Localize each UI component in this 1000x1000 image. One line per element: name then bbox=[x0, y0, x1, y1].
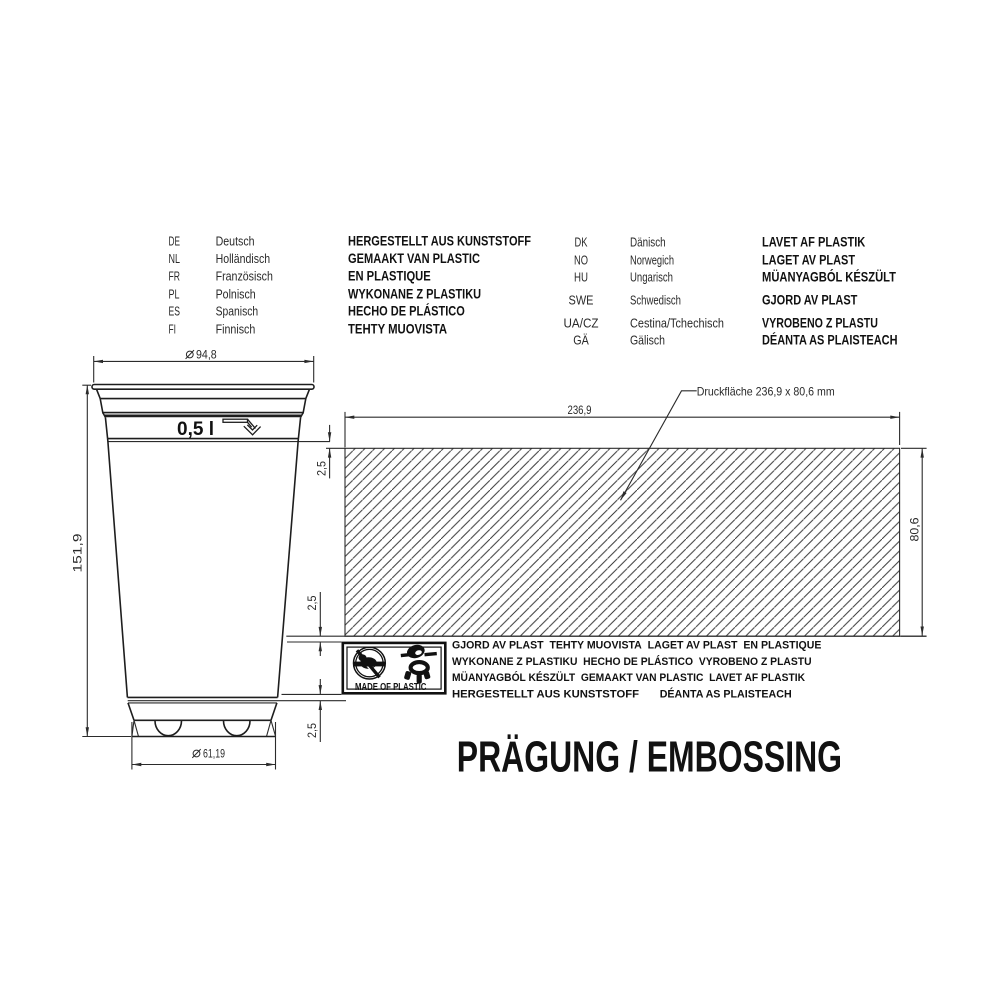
svg-text:MÜANYAGBÓL KÉSZÜLT: MÜANYAGBÓL KÉSZÜLT bbox=[762, 270, 897, 285]
svg-text:DÉANTA AS PLAISTEACH: DÉANTA AS PLAISTEACH bbox=[660, 688, 792, 701]
svg-text:GÄ: GÄ bbox=[573, 333, 589, 348]
svg-text:NO: NO bbox=[574, 253, 588, 268]
svg-text:FI: FI bbox=[169, 322, 177, 337]
svg-text:LAGET AV PLAST: LAGET AV PLAST bbox=[762, 253, 856, 268]
svg-text:TEHTY MUOVISTA: TEHTY MUOVISTA bbox=[348, 322, 447, 337]
svg-text:Cestina/Tchechisch: Cestina/Tchechisch bbox=[630, 316, 724, 331]
svg-text:GEMAAKT VAN PLASTIC: GEMAAKT VAN PLASTIC bbox=[348, 251, 480, 266]
svg-text:94,8: 94,8 bbox=[196, 349, 217, 361]
svg-text:DÉANTA AS PLAISTEACH: DÉANTA AS PLAISTEACH bbox=[762, 333, 898, 348]
svg-text:Deutsch: Deutsch bbox=[216, 234, 255, 249]
svg-text:UA/CZ: UA/CZ bbox=[564, 316, 599, 331]
svg-text:NL: NL bbox=[169, 251, 181, 266]
svg-text:2,5: 2,5 bbox=[316, 461, 328, 476]
svg-text:WYKONANE Z PLASTIKU: WYKONANE Z PLASTIKU bbox=[348, 287, 481, 302]
svg-text:80,6: 80,6 bbox=[910, 518, 922, 542]
svg-text:Norwegich: Norwegich bbox=[630, 253, 674, 268]
svg-text:PRÄGUNG / EMBOSSING: PRÄGUNG / EMBOSSING bbox=[457, 733, 842, 782]
svg-text:MADE OF PLASTIC: MADE OF PLASTIC bbox=[355, 682, 426, 693]
svg-text:2,5: 2,5 bbox=[307, 596, 319, 611]
svg-text:GJORD AV PLAST TEHTY MUOVISTA: GJORD AV PLAST TEHTY MUOVISTA LAGET AV P… bbox=[452, 639, 822, 651]
svg-text:Holländisch: Holländisch bbox=[216, 251, 271, 266]
svg-text:236,9: 236,9 bbox=[568, 405, 592, 417]
svg-text:Gälisch: Gälisch bbox=[630, 333, 665, 348]
svg-text:LAVET AF PLASTIK: LAVET AF PLASTIK bbox=[762, 235, 866, 250]
svg-text:Französisch: Französisch bbox=[216, 269, 273, 284]
svg-text:Spanisch: Spanisch bbox=[216, 304, 259, 319]
svg-text:PL: PL bbox=[169, 287, 180, 302]
svg-text:EN PLASTIQUE: EN PLASTIQUE bbox=[348, 269, 431, 284]
svg-text:HERGESTELLT AUS KUNSTSTOFF: HERGESTELLT AUS KUNSTSTOFF bbox=[452, 689, 639, 701]
svg-text:MÜANYAGBÓL KÉSZÜLT GEMAAKT VA: MÜANYAGBÓL KÉSZÜLT GEMAAKT VAN PLASTIC L… bbox=[452, 671, 806, 684]
svg-text:0,5 l: 0,5 l bbox=[177, 418, 214, 440]
svg-text:Dänisch: Dänisch bbox=[630, 235, 666, 250]
svg-text:GJORD AV PLAST: GJORD AV PLAST bbox=[762, 293, 858, 308]
svg-text:SWE: SWE bbox=[569, 293, 594, 308]
svg-text:ES: ES bbox=[169, 304, 181, 319]
svg-text:HU: HU bbox=[574, 270, 588, 285]
svg-text:HECHO DE PLÁSTICO: HECHO DE PLÁSTICO bbox=[348, 304, 465, 319]
svg-text:DK: DK bbox=[575, 235, 588, 250]
svg-text:DE: DE bbox=[169, 234, 181, 249]
svg-text:VYROBENO Z PLASTU: VYROBENO Z PLASTU bbox=[762, 316, 878, 331]
svg-text:FR: FR bbox=[169, 269, 181, 284]
svg-text:Polnisch: Polnisch bbox=[216, 287, 256, 302]
svg-text:2,5: 2,5 bbox=[307, 723, 319, 738]
svg-text:151,9: 151,9 bbox=[73, 534, 85, 573]
svg-text:Druckfläche 236,9 x 80,6 mm: Druckfläche 236,9 x 80,6 mm bbox=[697, 384, 835, 398]
svg-text:Finnisch: Finnisch bbox=[216, 322, 256, 337]
svg-text:61,19: 61,19 bbox=[203, 748, 225, 760]
svg-text:WYKONANE Z PLASTIKU HECHO DE: WYKONANE Z PLASTIKU HECHO DE PLÁSTICO VY… bbox=[452, 655, 812, 668]
svg-text:Ungarisch: Ungarisch bbox=[630, 270, 673, 285]
svg-text:HERGESTELLT AUS KUNSTSTOFF: HERGESTELLT AUS KUNSTSTOFF bbox=[348, 234, 531, 249]
svg-text:Schwedisch: Schwedisch bbox=[630, 293, 681, 308]
